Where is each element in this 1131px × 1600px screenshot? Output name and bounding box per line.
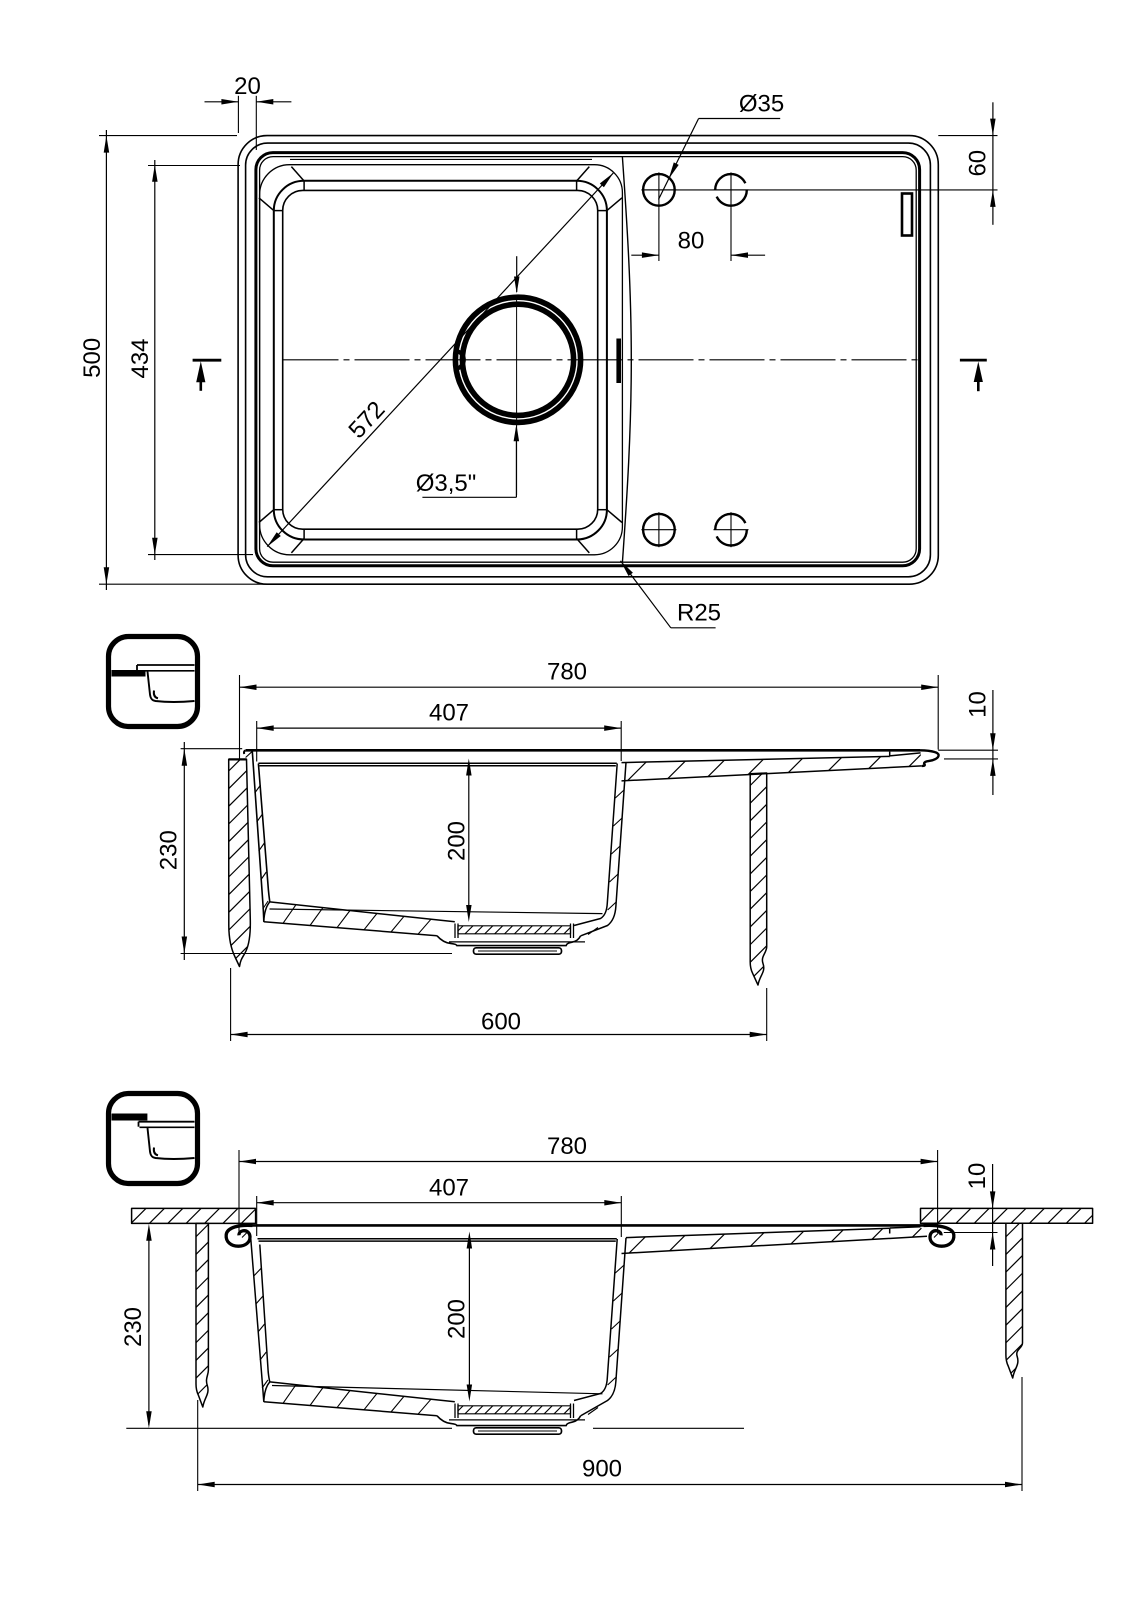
svg-text:200: 200 <box>443 1299 470 1339</box>
svg-text:80: 80 <box>678 228 705 255</box>
svg-text:10: 10 <box>964 691 991 718</box>
svg-text:Ø35: Ø35 <box>739 91 784 118</box>
svg-text:407: 407 <box>429 1175 469 1202</box>
svg-text:230: 230 <box>120 1307 147 1347</box>
svg-text:780: 780 <box>547 1133 587 1160</box>
svg-text:230: 230 <box>155 830 182 870</box>
svg-text:R25: R25 <box>677 600 721 627</box>
svg-text:10: 10 <box>964 1163 991 1190</box>
svg-text:Ø3,5": Ø3,5" <box>416 470 477 497</box>
svg-text:780: 780 <box>547 658 587 685</box>
svg-text:600: 600 <box>481 1009 521 1036</box>
svg-text:20: 20 <box>234 73 261 100</box>
svg-text:60: 60 <box>964 150 991 177</box>
svg-text:407: 407 <box>429 700 469 727</box>
svg-text:900: 900 <box>582 1456 622 1483</box>
svg-text:500: 500 <box>79 338 106 378</box>
svg-text:200: 200 <box>443 821 470 861</box>
svg-text:434: 434 <box>127 338 154 378</box>
